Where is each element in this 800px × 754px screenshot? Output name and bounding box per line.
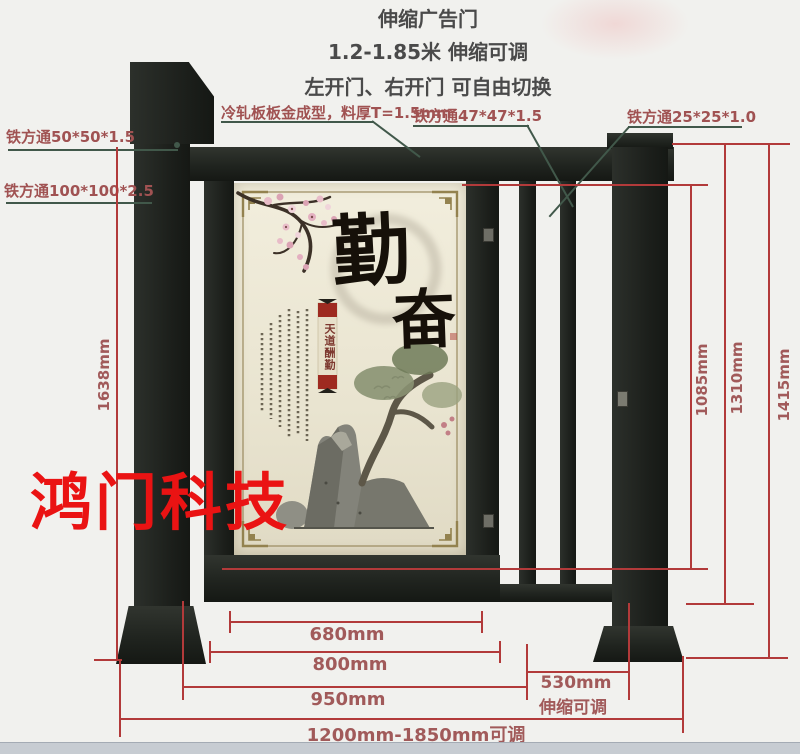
left-post-cap [130, 62, 214, 144]
dim-line-total-width [120, 718, 683, 720]
dim-tick-total-right [682, 656, 684, 733]
bottom-gray-band [0, 742, 800, 754]
dim-line-door-width [210, 651, 500, 653]
dim-label-post-height: 1415mm [775, 345, 793, 425]
dim-label-door-height: 1310mm [728, 338, 746, 418]
range-subtitle: 1.2-1.85米 伸缩可调 [278, 41, 578, 63]
gate-left-post [134, 144, 190, 614]
dim-top-tick-right [672, 143, 790, 145]
opening-subtitle: 左开门、右开门 可自由切换 [278, 76, 578, 98]
dim-label-door-width: 800mm [300, 654, 400, 675]
callout-tube50-leader [8, 149, 178, 151]
dim-line-door-height [724, 143, 726, 604]
dim-tick-door-right [499, 641, 501, 663]
callout-tube25-label: 铁方通25*25*1.0 [627, 106, 756, 127]
poster-text-columns [262, 309, 307, 441]
dim-tick-opening-left [182, 601, 184, 700]
callout-coldplate-leader [221, 121, 374, 123]
dim-line-rail-height [690, 184, 692, 568]
diagram-canvas: 伸缩广告门 1.2-1.85米 伸缩可调 左开门、右开门 可自由切换 [0, 0, 800, 754]
dim-tick-total-height-bottom [94, 659, 122, 661]
header-block: 伸缩广告门 1.2-1.85米 伸缩可调 左开门、右开门 可自由切换 [278, 8, 578, 98]
dim-label-total-height: 1638mm [95, 335, 113, 415]
dim-line-opening-width [183, 686, 527, 688]
lock-keyhole [617, 391, 628, 407]
right-post-base [593, 626, 684, 662]
dim-top-reference-line [462, 184, 708, 186]
callout-tube47-label: 铁方通47*47*1.5 [413, 105, 542, 126]
watermark-text: 鸿门科技 [30, 452, 290, 542]
seal-banner-text: 天道酬勤 [319, 320, 337, 374]
dim-tick-total-left [119, 660, 121, 737]
dim-tick-post-bottom [686, 657, 788, 659]
dim-label-telescopic-width: 530mm [526, 673, 626, 693]
callout-tube47-leader [413, 125, 529, 127]
hinge-top [483, 228, 494, 242]
callout-tube100-label: 铁方通100*100*2.5 [4, 180, 154, 201]
dim-tick-rail-bottom [222, 568, 708, 570]
gate-right-post [612, 147, 668, 633]
product-title: 伸缩广告门 [278, 8, 578, 30]
dim-label-panel-width: 680mm [297, 624, 397, 645]
dim-tick-panel-right [481, 611, 483, 633]
landscape-ink-art [276, 333, 462, 529]
dim-label-opening-width: 950mm [298, 689, 398, 710]
dim-tick-door-bottom [686, 603, 754, 605]
dim-tick-panel-left [229, 611, 231, 633]
dim-line-post-height [768, 143, 770, 658]
left-post-base [116, 606, 206, 664]
callout-tube50-dot [174, 142, 180, 148]
gate-top-beam [190, 147, 674, 181]
dim-label-telescopic-note: 伸缩可调 [523, 693, 623, 718]
callout-tube100-leader [6, 202, 152, 204]
plum-branch-art [238, 193, 336, 271]
dim-line-panel-width [230, 621, 482, 623]
hinge-bottom [483, 514, 494, 528]
dim-label-rail-height: 1085mm [693, 340, 711, 420]
calligraphy-char-qin: 勤 [330, 211, 412, 293]
calligraphy-char-fen: 奋 [391, 288, 457, 354]
dim-line-total-height [116, 147, 118, 661]
telescopic-bar-1 [519, 181, 536, 584]
telescopic-bar-2 [560, 181, 576, 584]
dim-tick-telescopic-right [628, 603, 630, 700]
door-bottom-rail [204, 555, 500, 602]
callout-tube50-label: 铁方通50*50*1.5 [6, 126, 135, 147]
dim-tick-door-left [209, 641, 211, 663]
telescopic-bottom-rail [500, 584, 630, 602]
callout-tube25-leader [628, 126, 742, 128]
